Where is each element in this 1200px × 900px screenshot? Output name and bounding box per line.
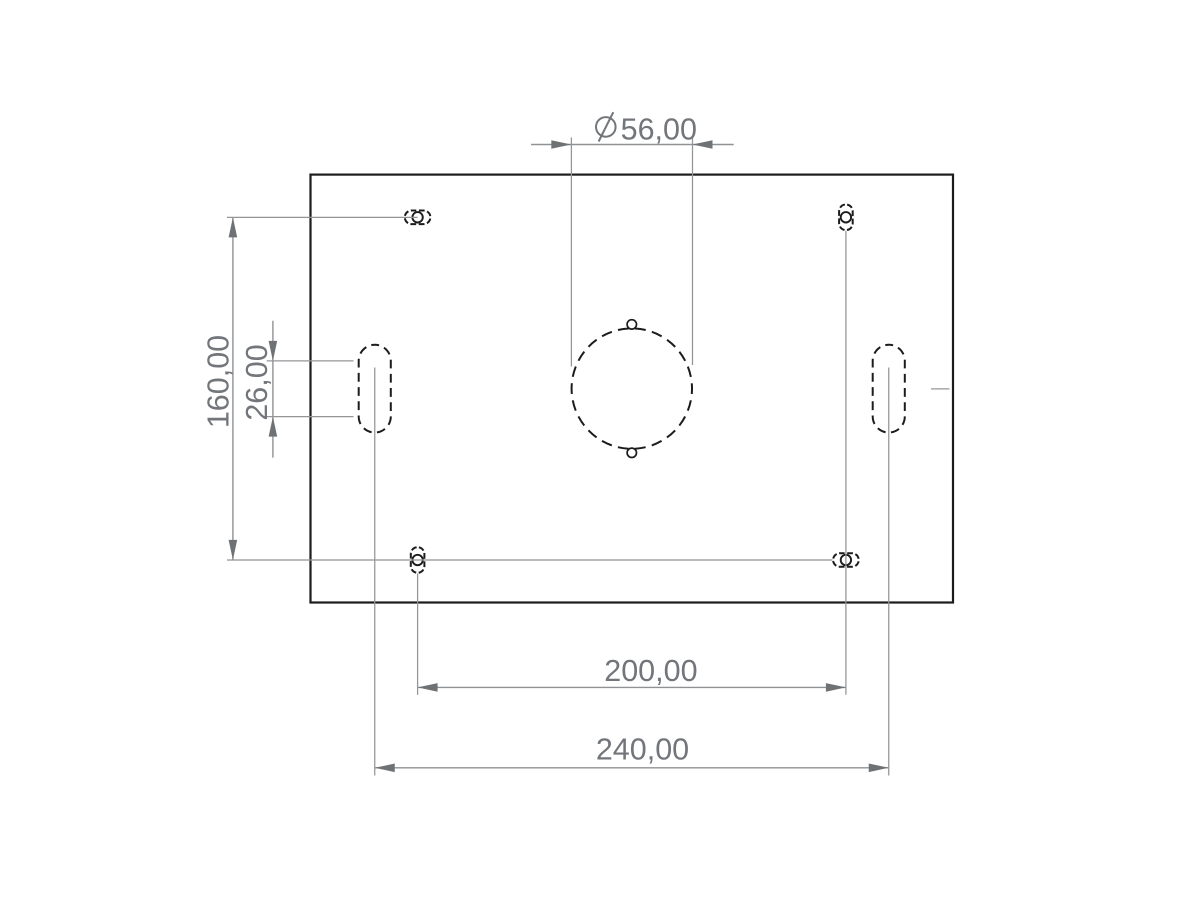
svg-text:240,00: 240,00 [596,733,689,767]
svg-text:200,00: 200,00 [604,654,697,688]
svg-text:56,00: 56,00 [621,112,697,146]
svg-text:26,00: 26,00 [240,344,274,420]
svg-text:160,00: 160,00 [202,335,236,428]
